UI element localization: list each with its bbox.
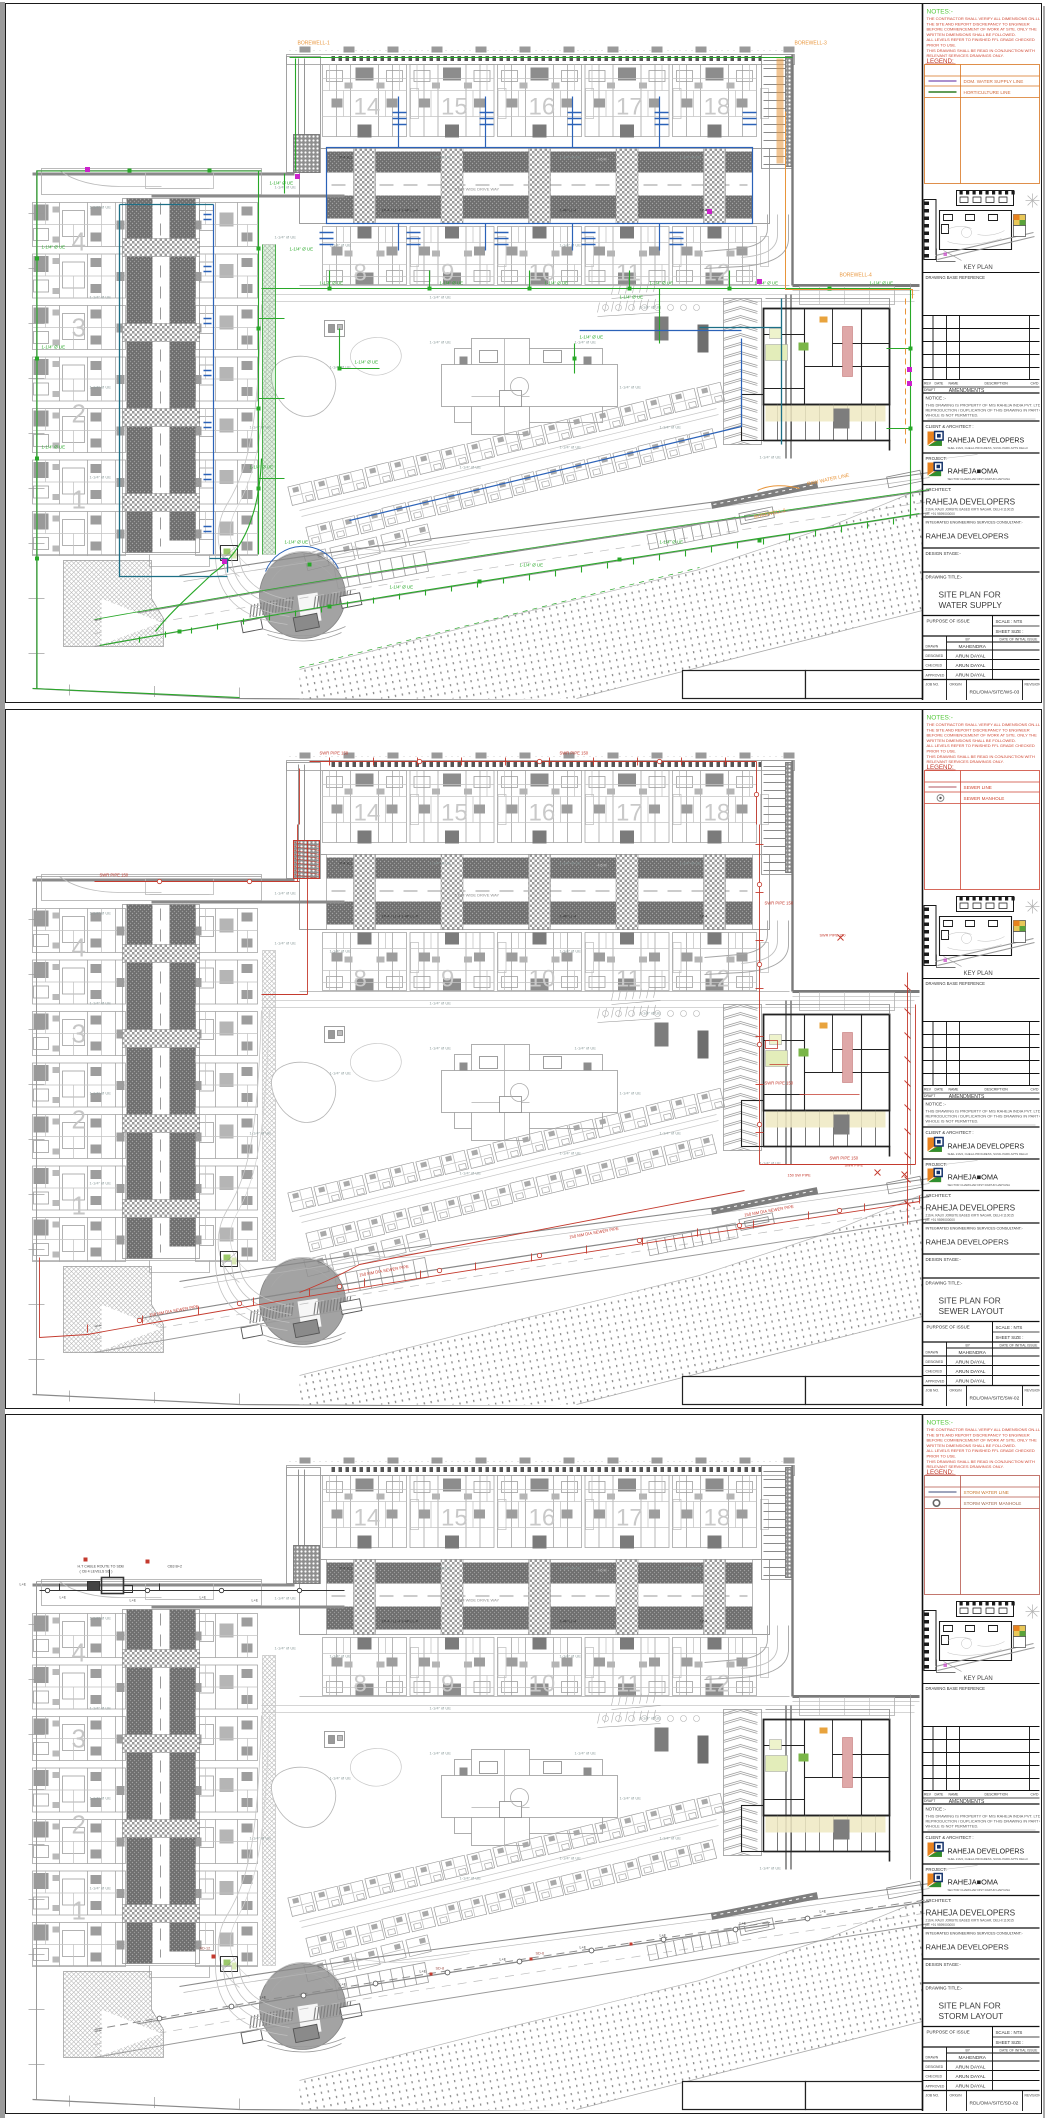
svg-text:1-1/4" Ø UE: 1-1/4" Ø UE bbox=[560, 445, 582, 450]
svg-text:1-1/4" Ø UE: 1-1/4" Ø UE bbox=[870, 281, 894, 286]
svg-text:REV: REV bbox=[924, 382, 932, 386]
svg-text:1-1/4" Ø UE: 1-1/4" Ø UE bbox=[760, 455, 782, 460]
svg-text:L+E: L+E bbox=[340, 1983, 347, 1987]
svg-text:L+E: L+E bbox=[420, 1970, 427, 1974]
svg-text:STORM WATER LINE: STORM WATER LINE bbox=[964, 1490, 1009, 1495]
svg-text:L+E: L+E bbox=[820, 1910, 827, 1914]
svg-text:1-1/4" Ø UE: 1-1/4" Ø UE bbox=[545, 281, 569, 286]
svg-text:NOTES:-: NOTES:- bbox=[927, 9, 953, 16]
svg-text:1P-4 / LL-4 1-4P LL-P: 1P-4 / LL-4 1-4P LL-P bbox=[382, 209, 419, 213]
svg-text:NOTICE :-: NOTICE :- bbox=[926, 396, 947, 401]
svg-text:L+E: L+E bbox=[252, 1599, 259, 1603]
svg-text:ARUN DAYAL: ARUN DAYAL bbox=[956, 654, 986, 660]
svg-text:DATE: DATE bbox=[935, 382, 945, 386]
svg-text:BEFORE COMMENCEMENT OF WORK AT: BEFORE COMMENCEMENT OF WORK AT SITE. ONL… bbox=[927, 27, 1038, 32]
svg-text:RDL/OMA/SITE/WS-03: RDL/OMA/SITE/WS-03 bbox=[970, 690, 1020, 696]
svg-text:SHEL 216/4, CHELA-PROGRESS, SU: SHEL 216/4, CHELA-PROGRESS, SUNIL PARK A… bbox=[948, 446, 1028, 450]
svg-text:1-1/4" Ø UE: 1-1/4" Ø UE bbox=[355, 360, 379, 365]
svg-text:1-1/4" Ø UE: 1-1/4" Ø UE bbox=[290, 247, 314, 252]
svg-text:1-1/4" Ø UE: 1-1/4" Ø UE bbox=[460, 465, 482, 470]
svg-text:SECTOR CHARKHAR DIST RAIPUR: SECTOR CHARKHAR DIST RAIPUR HARYANA bbox=[948, 477, 1011, 481]
svg-text:1-1/4" Ø UE: 1-1/4" Ø UE bbox=[620, 385, 642, 390]
svg-text:SWR PIPE 150: SWR PIPE 150 bbox=[560, 751, 589, 756]
svg-text:6.0 M WIDE DRIVE WAY: 6.0 M WIDE DRIVE WAY bbox=[455, 187, 500, 192]
svg-text:THE SITE AND REPORT DISCREPANC: THE SITE AND REPORT DISCREPANCY TO ENGIN… bbox=[927, 21, 1030, 26]
svg-text:DESCRIPTION: DESCRIPTION bbox=[985, 382, 1009, 386]
svg-text:P-4 xLL: P-4 xLL bbox=[340, 156, 353, 160]
svg-text:150 SW PIPE: 150 SW PIPE bbox=[788, 1174, 812, 1178]
svg-text:RAHEJA DEVELOPERS: RAHEJA DEVELOPERS bbox=[926, 532, 1009, 541]
svg-text:WHOLE IS NOT PERMITTED.: WHOLE IS NOT PERMITTED. bbox=[926, 413, 979, 418]
svg-text:1-1/4" Ø UE: 1-1/4" Ø UE bbox=[390, 585, 414, 590]
svg-text:SITE PLAN FOR: SITE PLAN FOR bbox=[939, 2001, 1001, 2011]
svg-text:THE CONTRACTOR SHALL VERIFY AL: THE CONTRACTOR SHALL VERIFY ALL DIMENSIO… bbox=[927, 16, 1041, 21]
svg-text:1-1/4" Ø UE: 1-1/4" Ø UE bbox=[270, 181, 294, 186]
svg-text:8: 8 bbox=[354, 260, 367, 287]
svg-text:1-1/4" Ø UE: 1-1/4" Ø UE bbox=[42, 445, 66, 450]
svg-text:12: 12 bbox=[704, 260, 731, 287]
svg-text:L+E: L+E bbox=[130, 1599, 137, 1603]
svg-text:CB3 B+2: CB3 B+2 bbox=[168, 1565, 182, 1569]
svg-text:4: 4 bbox=[72, 227, 86, 257]
svg-text:1-1/4" Ø UE: 1-1/4" Ø UE bbox=[560, 243, 582, 248]
svg-text:HORTICULTURE LINE: HORTICULTURE LINE bbox=[964, 90, 1011, 95]
svg-text:BY: BY bbox=[966, 638, 971, 642]
svg-text:ALL LEVELS REFER TO FINISHED F: ALL LEVELS REFER TO FINISHED FFL GRADE C… bbox=[927, 37, 1035, 42]
svg-text:1-1/4" Ø UE: 1-1/4" Ø UE bbox=[680, 155, 702, 160]
svg-text:DATE OF INITIAL ISSUE: DATE OF INITIAL ISSUE bbox=[1000, 638, 1039, 642]
svg-text:1-1/4" Ø UE: 1-1/4" Ø UE bbox=[660, 425, 682, 430]
svg-text:1-1/4" Ø UE: 1-1/4" Ø UE bbox=[285, 540, 309, 545]
svg-text:SWR PIPE: SWR PIPE bbox=[845, 1164, 864, 1168]
svg-text:RDL/OMA/SITE/SD-02: RDL/OMA/SITE/SD-02 bbox=[970, 2101, 1019, 2107]
svg-text:SCALE : NTS: SCALE : NTS bbox=[996, 619, 1023, 624]
svg-text:DRAWN: DRAWN bbox=[926, 645, 939, 649]
svg-text:REVISION: REVISION bbox=[1025, 683, 1041, 687]
svg-text:17: 17 bbox=[616, 94, 643, 121]
svg-text:L+E: L+E bbox=[200, 1596, 207, 1600]
svg-text:ph: +91 9599000000: ph: +91 9599000000 bbox=[926, 512, 956, 516]
svg-text:PURPOSE OF ISSUE: PURPOSE OF ISSUE bbox=[927, 619, 970, 624]
svg-text:BOREWELL-4: BOREWELL-4 bbox=[840, 273, 872, 279]
svg-text:RAHEJA DEVELOPERS: RAHEJA DEVELOPERS bbox=[926, 498, 1016, 507]
svg-text:1-1/4" Ø UE: 1-1/4" Ø UE bbox=[90, 475, 112, 480]
svg-text:SITE PLAN FOR: SITE PLAN FOR bbox=[939, 590, 1001, 600]
svg-text:1-1/4" Ø UE: 1-1/4" Ø UE bbox=[430, 295, 452, 300]
svg-text:16: 16 bbox=[529, 94, 556, 121]
svg-text:1-1/4" Ø UE: 1-1/4" Ø UE bbox=[640, 305, 662, 310]
svg-text:SWR PIPE 150: SWR PIPE 150 bbox=[765, 1081, 794, 1086]
svg-text:150 MM DIA SEWER PIPE: 150 MM DIA SEWER PIPE bbox=[569, 1226, 620, 1240]
svg-text:L+E: L+E bbox=[660, 1934, 667, 1938]
svg-text:STORM WATER MANHOLE: STORM WATER MANHOLE bbox=[964, 1501, 1022, 1506]
svg-text:RAHEJA■OMA: RAHEJA■OMA bbox=[948, 467, 999, 476]
svg-text:L+E: L+E bbox=[60, 1596, 67, 1600]
svg-text:SWR PIPE 150: SWR PIPE 150 bbox=[765, 901, 794, 906]
svg-text:2: 2 bbox=[72, 399, 86, 429]
svg-text:1-1/4" Ø UE: 1-1/4" Ø UE bbox=[430, 155, 452, 160]
svg-text:1-1/4" Ø UE: 1-1/4" Ø UE bbox=[575, 340, 597, 345]
svg-text:KEY PLAN: KEY PLAN bbox=[964, 265, 993, 271]
svg-text:1-1/4" Ø UE: 1-1/4" Ø UE bbox=[90, 295, 112, 300]
svg-text:1-1/4" Ø UE: 1-1/4" Ø UE bbox=[42, 245, 66, 250]
svg-text:THIS DRAWING SHALL BE READ IN: THIS DRAWING SHALL BE READ IN CONJUNCTIO… bbox=[927, 48, 1035, 53]
svg-text:SWR PIPE 150: SWR PIPE 150 bbox=[320, 751, 349, 756]
svg-text:RAHEJA DEVELOPERS: RAHEJA DEVELOPERS bbox=[948, 438, 1025, 445]
svg-text:L+E: L+E bbox=[740, 1922, 747, 1926]
svg-text:1-1/4" Ø UE: 1-1/4" Ø UE bbox=[90, 205, 112, 210]
svg-text:15: 15 bbox=[441, 94, 468, 121]
svg-text:SHEET SIZE :: SHEET SIZE : bbox=[996, 629, 1024, 634]
svg-text:1-1/4" Ø UE: 1-1/4" Ø UE bbox=[440, 281, 464, 286]
svg-text:150 MM DIA SEWER PIPE: 150 MM DIA SEWER PIPE bbox=[149, 1304, 200, 1318]
svg-text:CHECKED: CHECKED bbox=[926, 664, 943, 668]
svg-text:11: 11 bbox=[616, 260, 641, 287]
svg-text:1-1/4" Ø UE: 1-1/4" Ø UE bbox=[560, 155, 582, 160]
svg-text:CH'D: CH'D bbox=[1031, 382, 1040, 386]
svg-text:4.5 M: 4.5 M bbox=[598, 158, 607, 162]
svg-text:RAW WATER LINE: RAW WATER LINE bbox=[807, 473, 851, 488]
svg-text:BOREWELL-3: BOREWELL-3 bbox=[795, 41, 827, 47]
svg-text:ARUN DAYAL: ARUN DAYAL bbox=[956, 673, 986, 679]
svg-text:L+E: L+E bbox=[500, 1958, 507, 1962]
svg-text:1-1/4" Ø UE: 1-1/4" Ø UE bbox=[430, 340, 452, 345]
svg-text:SEWER MANHOLE: SEWER MANHOLE bbox=[964, 796, 1005, 801]
svg-text:SD-8: SD-8 bbox=[436, 1967, 445, 1971]
svg-text:SEWER LINE: SEWER LINE bbox=[964, 785, 992, 790]
svg-text:1P-4: 1P-4 bbox=[700, 209, 708, 213]
svg-text:SD-6: SD-6 bbox=[536, 1952, 545, 1956]
svg-text:1: 1 bbox=[72, 485, 86, 515]
svg-text:1-4P LL-4: 1-4P LL-4 bbox=[560, 209, 577, 213]
svg-text:DESIGNED: DESIGNED bbox=[926, 654, 944, 658]
svg-text:STORM LAYOUT: STORM LAYOUT bbox=[939, 2011, 1004, 2021]
svg-text:MAHENDRA: MAHENDRA bbox=[959, 644, 987, 650]
svg-text:1-1/4" Ø UE: 1-1/4" Ø UE bbox=[320, 281, 344, 286]
svg-text:SWR PIPE 150: SWR PIPE 150 bbox=[100, 873, 129, 878]
svg-text:ORIGIN: ORIGIN bbox=[950, 683, 963, 687]
svg-text:INTEGRATED ENGINEERING SERVICE: INTEGRATED ENGINEERING SERVICES CONSULTA… bbox=[926, 521, 1024, 525]
svg-text:L+E: L+E bbox=[20, 1583, 27, 1587]
svg-text:L+E: L+E bbox=[260, 1996, 267, 2000]
svg-text:1-1/4" Ø UE: 1-1/4" Ø UE bbox=[90, 385, 112, 390]
svg-text:( CB 4 LEVELS SD ): ( CB 4 LEVELS SD ) bbox=[80, 1570, 113, 1574]
svg-text:1-1/4" Ø UE: 1-1/4" Ø UE bbox=[275, 235, 297, 240]
svg-text:1-1/4" Ø UE: 1-1/4" Ø UE bbox=[650, 281, 674, 286]
svg-text:3: 3 bbox=[72, 313, 86, 343]
svg-text:BOREWELL-1: BOREWELL-1 bbox=[298, 41, 330, 47]
svg-text:DESIGN STAGE:-: DESIGN STAGE:- bbox=[926, 551, 962, 556]
svg-text:CLIENT & ARCHITECT :: CLIENT & ARCHITECT : bbox=[926, 424, 974, 429]
svg-text:SWR PIPE 150: SWR PIPE 150 bbox=[830, 1156, 859, 1161]
svg-text:1-1/4" Ø UE: 1-1/4" Ø UE bbox=[620, 295, 644, 300]
svg-text:L+E: L+E bbox=[580, 1946, 587, 1950]
svg-text:1-1/4" Ø UE: 1-1/4" Ø UE bbox=[580, 335, 604, 340]
svg-text:AMENDMENTS: AMENDMENTS bbox=[949, 388, 985, 394]
svg-text:DRAWING TITLE:-: DRAWING TITLE:- bbox=[926, 575, 963, 580]
svg-text:DOM. WATER SUPPLY LINE: DOM. WATER SUPPLY LINE bbox=[964, 79, 1024, 84]
svg-text:216/4, RAUX JORBITE BASED KIRT: 216/4, RAUX JORBITE BASED KIRTI NAGAR, D… bbox=[926, 508, 1015, 512]
svg-text:JOB NO.: JOB NO. bbox=[926, 683, 940, 687]
svg-text:WRITTEN DIMENSIONS SHALL BE: WRITTEN DIMENSIONS SHALL BE FOLLOWED. bbox=[927, 32, 1016, 37]
svg-text:SD-12: SD-12 bbox=[200, 1947, 211, 1951]
svg-text:DRAFT: DRAFT bbox=[924, 388, 935, 392]
svg-text:SITE PLAN FOR: SITE PLAN FOR bbox=[939, 1296, 1001, 1306]
svg-text:18: 18 bbox=[704, 94, 731, 121]
svg-text:PRIOR TO USE.: PRIOR TO USE. bbox=[927, 43, 957, 48]
svg-text:ARUN DAYAL: ARUN DAYAL bbox=[956, 663, 986, 669]
svg-text:1-1/4" Ø UE: 1-1/4" Ø UE bbox=[520, 563, 544, 568]
svg-text:14: 14 bbox=[354, 94, 381, 121]
svg-text:DRAWING BASE REFERENCE: DRAWING BASE REFERENCE bbox=[926, 275, 986, 280]
svg-text:SEWER LAYOUT: SEWER LAYOUT bbox=[939, 1306, 1004, 1316]
svg-text:NAME: NAME bbox=[949, 382, 960, 386]
svg-text:1-1/4" Ø UE: 1-1/4" Ø UE bbox=[660, 540, 684, 545]
svg-text:WATER SUPPLY: WATER SUPPLY bbox=[939, 600, 1003, 610]
svg-text:H.T CABLE ROUTE TO SDB: H.T CABLE ROUTE TO SDB bbox=[78, 1565, 125, 1569]
svg-text:APPROVED: APPROVED bbox=[926, 674, 945, 678]
svg-text:RDL/OMA/SITE/SW-02: RDL/OMA/SITE/SW-02 bbox=[970, 1396, 1020, 1402]
svg-text:SWR PIPE 150: SWR PIPE 150 bbox=[820, 934, 846, 938]
svg-text:1-1/4" Ø UE: 1-1/4" Ø UE bbox=[42, 345, 66, 350]
